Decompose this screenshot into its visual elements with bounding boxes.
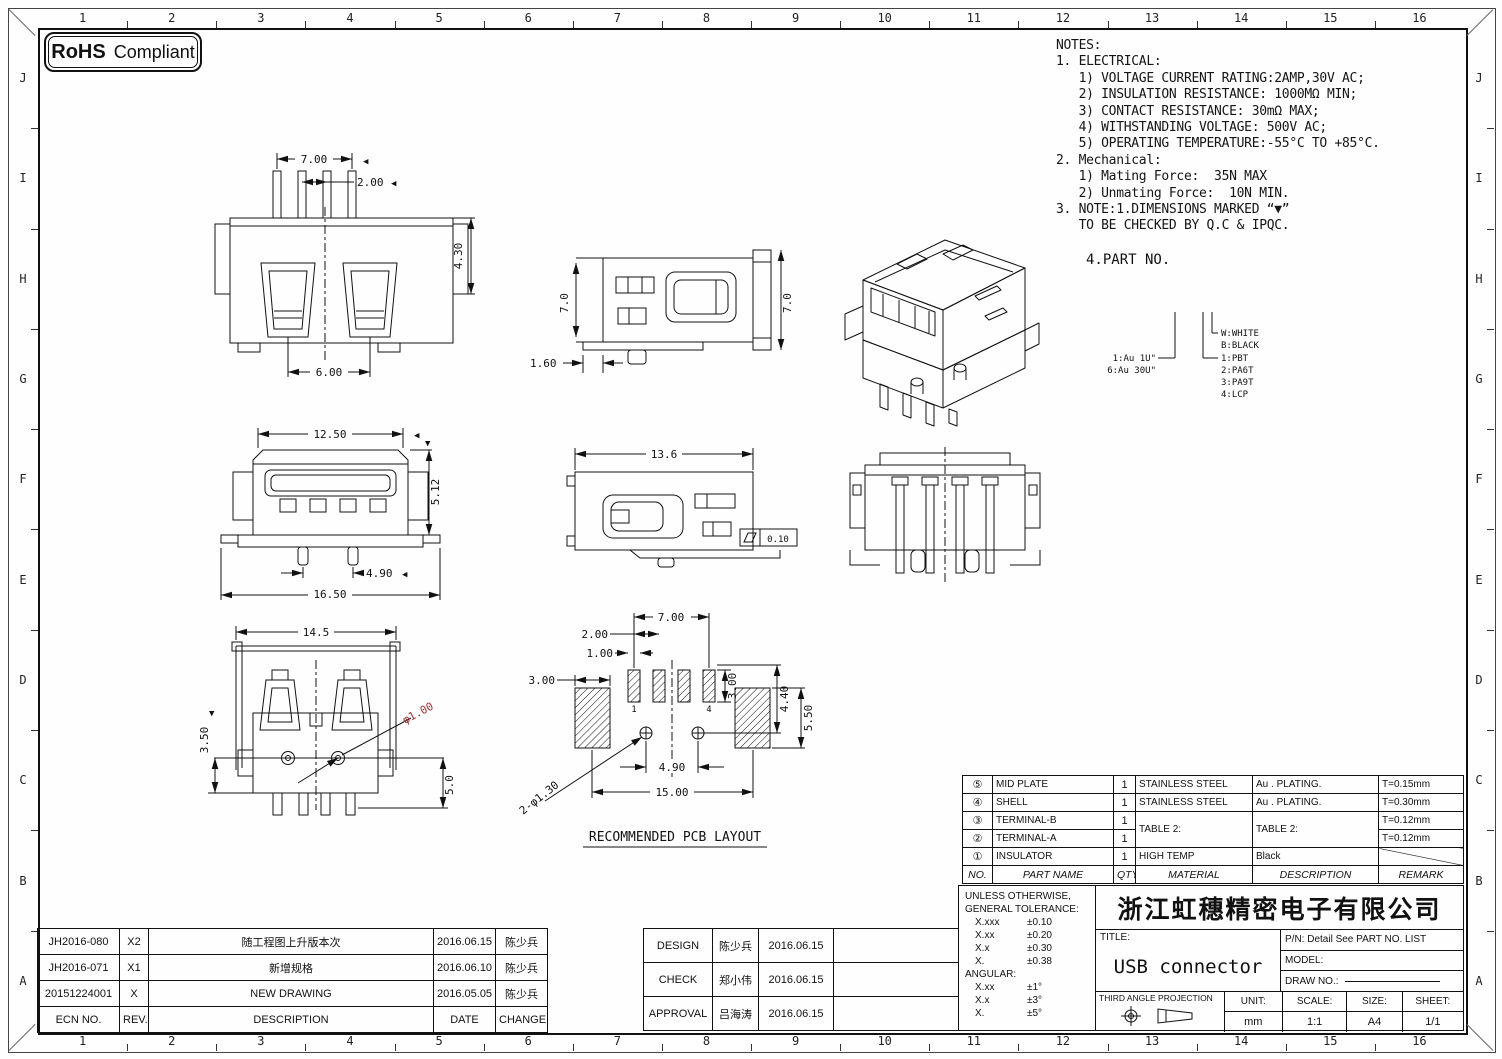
title-cell: TITLE: USB connector <box>1096 930 1281 991</box>
tol-value: ±0.20 <box>1027 929 1052 942</box>
tol-label: X.xxx <box>965 916 1027 929</box>
approval-table: DESIGN 陈少兵 2016.06.15 CHECK 郑小伟 2016.06.… <box>643 928 959 1031</box>
dim-label: 1.60 <box>530 357 557 370</box>
view-front: 12.50 ◀ ▼ 5.12 4.90 ◀ 16.50 <box>218 420 468 615</box>
pad-number: 4 <box>706 705 711 715</box>
grid-row-label: J <box>8 28 38 128</box>
approval-row: DESIGN 陈少兵 2016.06.15 <box>644 929 959 963</box>
approval-row: CHECK 郑小伟 2016.06.15 <box>644 963 959 997</box>
dim-label-hole: φ1.00 <box>400 700 435 727</box>
revision-table: JH2016-080 X2 随工程图上升版本次 2016.06.15 陈少兵 J… <box>37 928 548 1033</box>
rev-date: 2016.06.10 <box>434 955 496 981</box>
notes-line: TO BE CHECKED BY Q.C & IPQC. <box>1056 218 1466 234</box>
notes-line: NOTES: <box>1056 38 1466 54</box>
col-header: REV. <box>120 1007 149 1033</box>
part-material: STAINLESS STEEL <box>1136 776 1253 794</box>
notes-line: 5) OPERATING TEMPERATURE:-55°C TO +85°C. <box>1056 136 1466 152</box>
grid-col-label: 8 <box>662 1031 751 1051</box>
revision-row: JH2016-080 X2 随工程图上升版本次 2016.06.15 陈少兵 <box>38 929 548 955</box>
col-header: CHANGE <box>496 1007 548 1033</box>
grid-col-label: 14 <box>1197 8 1286 28</box>
tol-value: ±5° <box>1027 1007 1042 1020</box>
rev-change: 陈少兵 <box>496 981 548 1007</box>
projection-cone-icon <box>1156 1007 1196 1025</box>
grid-col-label: 4 <box>305 8 394 28</box>
ecn-no: JH2016-080 <box>38 929 120 955</box>
plating-option: 6:Au 30U" <box>1107 366 1156 376</box>
unit-cell: UNIT: mm <box>1225 992 1283 1032</box>
parts-row: ④ SHELL 1 STAINLESS STEEL Au . PLATING. … <box>963 794 1464 812</box>
grid-rows-right: JIHGFEDCBA <box>1464 28 1494 1031</box>
grid-col-label: 13 <box>1108 1031 1197 1051</box>
revision-header-row: ECN NO. REV. DESCRIPTION DATE CHANGE <box>38 1007 548 1033</box>
notes-line: 1) Mating Force: 35N MAX <box>1056 169 1466 185</box>
part-name: TERMINAL-A <box>993 830 1114 848</box>
ecn-no: JH2016-071 <box>38 955 120 981</box>
rev-code: X <box>120 981 149 1007</box>
part-balloon: ② <box>963 830 993 848</box>
grid-row-label: G <box>8 329 38 429</box>
tol-label: X. <box>965 955 1027 968</box>
part-qty: 1 <box>1114 830 1136 848</box>
view-rear-terminals <box>845 445 1045 593</box>
grid-row-label: J <box>1464 28 1494 128</box>
approval-empty <box>834 963 959 997</box>
grid-row-label: F <box>1464 429 1494 529</box>
dim-label: 3.00 <box>726 673 739 700</box>
plating-option: 1:Au 1U" <box>1113 354 1156 364</box>
grid-row-label: E <box>1464 529 1494 629</box>
material-option: 2:PA6T <box>1221 366 1254 376</box>
dim-label: 7.0 <box>781 293 794 313</box>
material-option: 4:LCP <box>1221 390 1249 400</box>
approval-date: 2016.06.15 <box>759 963 834 997</box>
pad-number: 1 <box>631 705 636 715</box>
notes-line: 3) CONTACT RESISTANCE: 30mΩ MAX; <box>1056 104 1466 120</box>
projection-circle-icon <box>1120 1005 1142 1027</box>
rev-change: 陈少兵 <box>496 929 548 955</box>
size-value: A4 <box>1347 1012 1401 1032</box>
grid-col-label: 4 <box>305 1031 394 1051</box>
dim-label: 5.12 <box>429 479 442 506</box>
approval-empty <box>834 997 959 1031</box>
approval-row: APPROVAL 吕海涛 2016.06.15 <box>644 997 959 1031</box>
tolerance-heading: UNLESS OTHERWISE, <box>965 890 1095 903</box>
dim-label: 7.00 <box>301 153 328 166</box>
angular-heading: ANGULAR: <box>965 968 1095 981</box>
grid-row-label: C <box>1464 730 1494 830</box>
col-header: ECN NO. <box>38 1007 120 1033</box>
scale-cell: SCALE: 1:1 <box>1283 992 1347 1032</box>
dim-label: 12.50 <box>313 428 346 441</box>
tol-value: ±0.30 <box>1027 942 1052 955</box>
rev-description: NEW DRAWING <box>149 981 434 1007</box>
notes-line: 3. NOTE:1.DIMENSIONS MARKED “▼” <box>1056 202 1466 218</box>
grid-row-label: B <box>8 830 38 930</box>
grid-col-label: 6 <box>484 8 573 28</box>
view-rear-top: 7.00 ◀ 2.00 ◀ 4.30 6.00 <box>213 145 481 390</box>
parts-list-table: ⑤ MID PLATE 1 STAINLESS STEEL Au . PLATI… <box>962 775 1464 884</box>
part-qty: 1 <box>1114 794 1136 812</box>
tolerance-heading: GENERAL TOLERANCE: <box>965 903 1095 916</box>
grid-row-label: F <box>8 429 38 529</box>
view-pcb-layout: 7.00 2.00 1.00 3.00 3.00 4.40 5.50 4.90 … <box>515 605 820 860</box>
tol-label: X. <box>965 1007 1027 1020</box>
rohs-badge-inner-border <box>48 36 198 68</box>
rev-date: 2016.05.05 <box>434 981 496 1007</box>
grid-col-label: 5 <box>395 1031 484 1051</box>
model-label: MODEL: <box>1281 951 1463 972</box>
part-balloon: ⑤ <box>963 776 993 794</box>
parts-row: ① INSULATOR 1 HIGH TEMP Black <box>963 848 1464 866</box>
sheet-label: SHEET: <box>1403 992 1463 1012</box>
grid-col-label: 11 <box>929 8 1018 28</box>
col-header: NO. <box>963 866 993 884</box>
grid-col-label: 15 <box>1286 8 1375 28</box>
tol-label: X.x <box>965 994 1027 1007</box>
notes-line: 4) WITHSTANDING VOLTAGE: 500V AC; <box>1056 120 1466 136</box>
tol-value: ±3° <box>1027 994 1042 1007</box>
revision-row: 20151224001 X NEW DRAWING 2016.05.05 陈少兵 <box>38 981 548 1007</box>
scale-value: 1:1 <box>1283 1012 1346 1032</box>
view-bottom: 14.5 ▼ 3.50 φ1.00 5.0 <box>198 618 460 840</box>
grid-col-label: 16 <box>1375 1031 1464 1051</box>
check-mark: ▼ <box>425 439 431 449</box>
part-qty: 1 <box>1114 812 1136 830</box>
part-material: STAINLESS STEEL <box>1136 794 1253 812</box>
grid-col-label: 15 <box>1286 1031 1375 1051</box>
parts-row: ③ TERMINAL-B 1 TABLE 2: TABLE 2: T=0.12m… <box>963 812 1464 830</box>
part-qty: 1 <box>1114 776 1136 794</box>
grid-col-label: 11 <box>929 1031 1018 1051</box>
revision-row: JH2016-071 X1 新增规格 2016.06.10 陈少兵 <box>38 955 548 981</box>
unit-value: mm <box>1225 1012 1282 1032</box>
dim-label: 3.50 <box>198 727 211 754</box>
tol-label: X.xx <box>965 981 1027 994</box>
dim-label: 7.00 <box>658 611 685 624</box>
unit-label: UNIT: <box>1225 992 1282 1012</box>
ecn-no: 20151224001 <box>38 981 120 1007</box>
col-header: QTY <box>1114 866 1136 884</box>
grid-row-label: H <box>8 229 38 329</box>
color-option: B:BLACK <box>1221 341 1260 351</box>
grid-row-label: B <box>1464 830 1494 930</box>
notes-line: 2) INSULATION RESISTANCE: 1000MΩ MIN; <box>1056 87 1466 103</box>
dim-label: 4.90 <box>659 761 686 774</box>
notes-block: NOTES: 1. ELECTRICAL: 1) VOLTAGE CURRENT… <box>1056 38 1466 235</box>
projection-cell: THIRD ANGLE PROJECTION <box>1096 992 1225 1032</box>
grid-columns-top: 12345678910111213141516 <box>38 8 1464 28</box>
dim-label: 2.00 <box>357 176 384 189</box>
company-name: 浙江虹穗精密电子有限公司 <box>1096 886 1463 930</box>
grid-row-label: D <box>8 630 38 730</box>
part-remark: T=0.15mm <box>1379 776 1464 794</box>
grid-col-label: 10 <box>840 8 929 28</box>
col-header: DATE <box>434 1007 496 1033</box>
grid-col-label: 12 <box>1018 1031 1107 1051</box>
check-mark: ◀ <box>391 179 397 189</box>
approval-date: 2016.06.15 <box>759 929 834 963</box>
part-name: TERMINAL-B <box>993 812 1114 830</box>
grid-rows-left: JIHGFEDCBA <box>8 28 38 1031</box>
parts-row: ⑤ MID PLATE 1 STAINLESS STEEL Au . PLATI… <box>963 776 1464 794</box>
part-name: INSULATOR <box>993 848 1114 866</box>
dim-label: 15.00 <box>655 786 688 799</box>
dim-label: 4.30 <box>452 243 465 270</box>
check-mark: ◀ <box>402 570 408 580</box>
dim-label: 2-φ1.30 <box>517 779 562 818</box>
dim-label: 6.00 <box>316 366 343 379</box>
rev-description: 随工程图上升版本次 <box>149 929 434 955</box>
part-description: TABLE 2: <box>1253 812 1379 848</box>
grid-col-label: 5 <box>395 8 484 28</box>
grid-col-label: 9 <box>751 1031 840 1051</box>
grid-row-label: D <box>1464 630 1494 730</box>
title-block: 浙江虹穗精密电子有限公司 TITLE: USB connector P/N: D… <box>1095 885 1464 1031</box>
scale-label: SCALE: <box>1283 992 1346 1012</box>
dim-label: 5.50 <box>802 705 815 732</box>
rev-description: 新增规格 <box>149 955 434 981</box>
material-option: 3:PA9T <box>1221 378 1254 388</box>
tol-label: X.x <box>965 942 1027 955</box>
grid-col-label: 7 <box>573 8 662 28</box>
tolerance-block: UNLESS OTHERWISE, GENERAL TOLERANCE: X.x… <box>958 885 1095 1031</box>
col-header: DESCRIPTION <box>1253 866 1379 884</box>
draw-no-label: DRAW NO.: <box>1285 976 1339 987</box>
dim-label: 14.5 <box>303 626 330 639</box>
grid-col-label: 1 <box>38 1031 127 1051</box>
grid-col-label: 2 <box>127 1031 216 1051</box>
part-balloon: ④ <box>963 794 993 812</box>
part-name: SHELL <box>993 794 1114 812</box>
engineering-drawing-sheet: 12345678910111213141516 1234567891011121… <box>0 0 1502 1059</box>
notes-line: 1. ELECTRICAL: <box>1056 54 1466 70</box>
part-remark: T=0.30mm <box>1379 794 1464 812</box>
part-remark: T=0.12mm <box>1379 812 1464 830</box>
approval-name: 吕海涛 <box>713 997 759 1031</box>
check-mark: ◀ <box>414 431 420 441</box>
dim-label: 1.00 <box>587 647 614 660</box>
view-side2: 13.6 0.10 <box>545 440 815 570</box>
dim-label: 13.6 <box>651 448 678 461</box>
part-remark: T=0.12mm <box>1379 830 1464 848</box>
tol-value: ±0.10 <box>1027 916 1052 929</box>
grid-row-label: A <box>1464 931 1494 1031</box>
tol-value: ±0.38 <box>1027 955 1052 968</box>
grid-col-label: 6 <box>484 1031 573 1051</box>
grid-columns-bottom: 12345678910111213141516 <box>38 1031 1464 1051</box>
size-label: SIZE: <box>1347 992 1401 1012</box>
grid-col-label: 2 <box>127 8 216 28</box>
part-name: MID PLATE <box>993 776 1114 794</box>
grid-col-label: 12 <box>1018 8 1107 28</box>
grid-col-label: 8 <box>662 8 751 28</box>
rev-code: X1 <box>120 955 149 981</box>
part-balloon: ③ <box>963 812 993 830</box>
part-no-heading: 4.PART NO. <box>1086 252 1170 268</box>
dim-label: 4.90 <box>366 567 393 580</box>
grid-col-label: 3 <box>216 8 305 28</box>
view-side: 7.0 7.0 1.60 <box>528 225 798 380</box>
title-label: TITLE: <box>1100 932 1130 943</box>
part-number-note: P/N: Detail See PART NO. LIST <box>1281 930 1463 951</box>
grid-col-label: 10 <box>840 1031 929 1051</box>
grid-row-label: I <box>8 128 38 228</box>
grid-col-label: 7 <box>573 1031 662 1051</box>
grid-col-label: 9 <box>751 8 840 28</box>
grid-col-label: 1 <box>38 8 127 28</box>
view-isometric <box>825 218 1040 430</box>
approval-date: 2016.06.15 <box>759 997 834 1031</box>
size-cell: SIZE: A4 <box>1347 992 1402 1032</box>
grid-row-label: A <box>8 931 38 1031</box>
part-material: HIGH TEMP <box>1136 848 1253 866</box>
part-description: Au . PLATING. <box>1253 794 1379 812</box>
grid-row-label: C <box>8 730 38 830</box>
grid-row-label: E <box>8 529 38 629</box>
check-mark: ▼ <box>209 709 215 719</box>
pcb-layout-title: RECOMMENDED PCB LAYOUT <box>589 830 761 845</box>
part-qty: 1 <box>1114 848 1136 866</box>
drawing-title: USB connector <box>1096 956 1280 978</box>
check-mark: ◀ <box>363 157 369 167</box>
approval-role: CHECK <box>644 963 713 997</box>
draw-no-line <box>1345 981 1440 982</box>
tol-label: X.xx <box>965 929 1027 942</box>
grid-row-label: I <box>1464 128 1494 228</box>
rev-date: 2016.06.15 <box>434 929 496 955</box>
dim-label: 2.00 <box>582 628 609 641</box>
sheet-value: 1/1 <box>1403 1012 1463 1032</box>
dim-label: 3.00 <box>529 674 556 687</box>
rev-code: X2 <box>120 929 149 955</box>
col-header: PART NAME <box>993 866 1114 884</box>
projection-label: THIRD ANGLE PROJECTION <box>1099 993 1213 1003</box>
part-description: Black <box>1253 848 1379 866</box>
part-remark-slash <box>1379 848 1464 866</box>
approval-name: 郑小伟 <box>713 963 759 997</box>
approval-role: DESIGN <box>644 929 713 963</box>
approval-empty <box>834 929 959 963</box>
grid-col-label: 14 <box>1197 1031 1286 1051</box>
flatness-value: 0.10 <box>767 535 789 545</box>
notes-line: 2. Mechanical: <box>1056 153 1466 169</box>
parts-header-row: NO. PART NAME QTY MATERIAL DESCRIPTION R… <box>963 866 1464 884</box>
part-description: Au . PLATING. <box>1253 776 1379 794</box>
grid-row-label: G <box>1464 329 1494 429</box>
part-balloon: ① <box>963 848 993 866</box>
dim-label: 5.0 <box>443 775 456 795</box>
grid-col-label: 3 <box>216 1031 305 1051</box>
dim-label: 16.50 <box>313 588 346 601</box>
part-material: TABLE 2: <box>1136 812 1253 848</box>
sheet-cell: SHEET: 1/1 <box>1403 992 1463 1032</box>
notes-line: 2) Unmating Force: 10N MIN. <box>1056 186 1466 202</box>
grid-col-label: 16 <box>1375 8 1464 28</box>
grid-row-label: H <box>1464 229 1494 329</box>
notes-line: 1) VOLTAGE CURRENT RATING:2AMP,30V AC; <box>1056 71 1466 87</box>
rev-change: 陈少兵 <box>496 955 548 981</box>
color-option: W:WHITE <box>1221 329 1259 339</box>
col-header: REMARK <box>1379 866 1464 884</box>
col-header: MATERIAL <box>1136 866 1253 884</box>
dim-label: 7.0 <box>558 293 571 313</box>
col-header: DESCRIPTION <box>149 1007 434 1033</box>
dim-label: 4.40 <box>778 686 791 713</box>
approval-name: 陈少兵 <box>713 929 759 963</box>
grid-col-label: 13 <box>1108 8 1197 28</box>
tol-value: ±1° <box>1027 981 1042 994</box>
part-no-tree: 1:Au 1U" 6:Au 30U" W:WHITE B:BLACK 1:PBT… <box>1100 300 1400 415</box>
approval-role: APPROVAL <box>644 997 713 1031</box>
rohs-badge: RoHS Compliant <box>44 32 202 72</box>
material-option: 1:PBT <box>1221 354 1249 364</box>
